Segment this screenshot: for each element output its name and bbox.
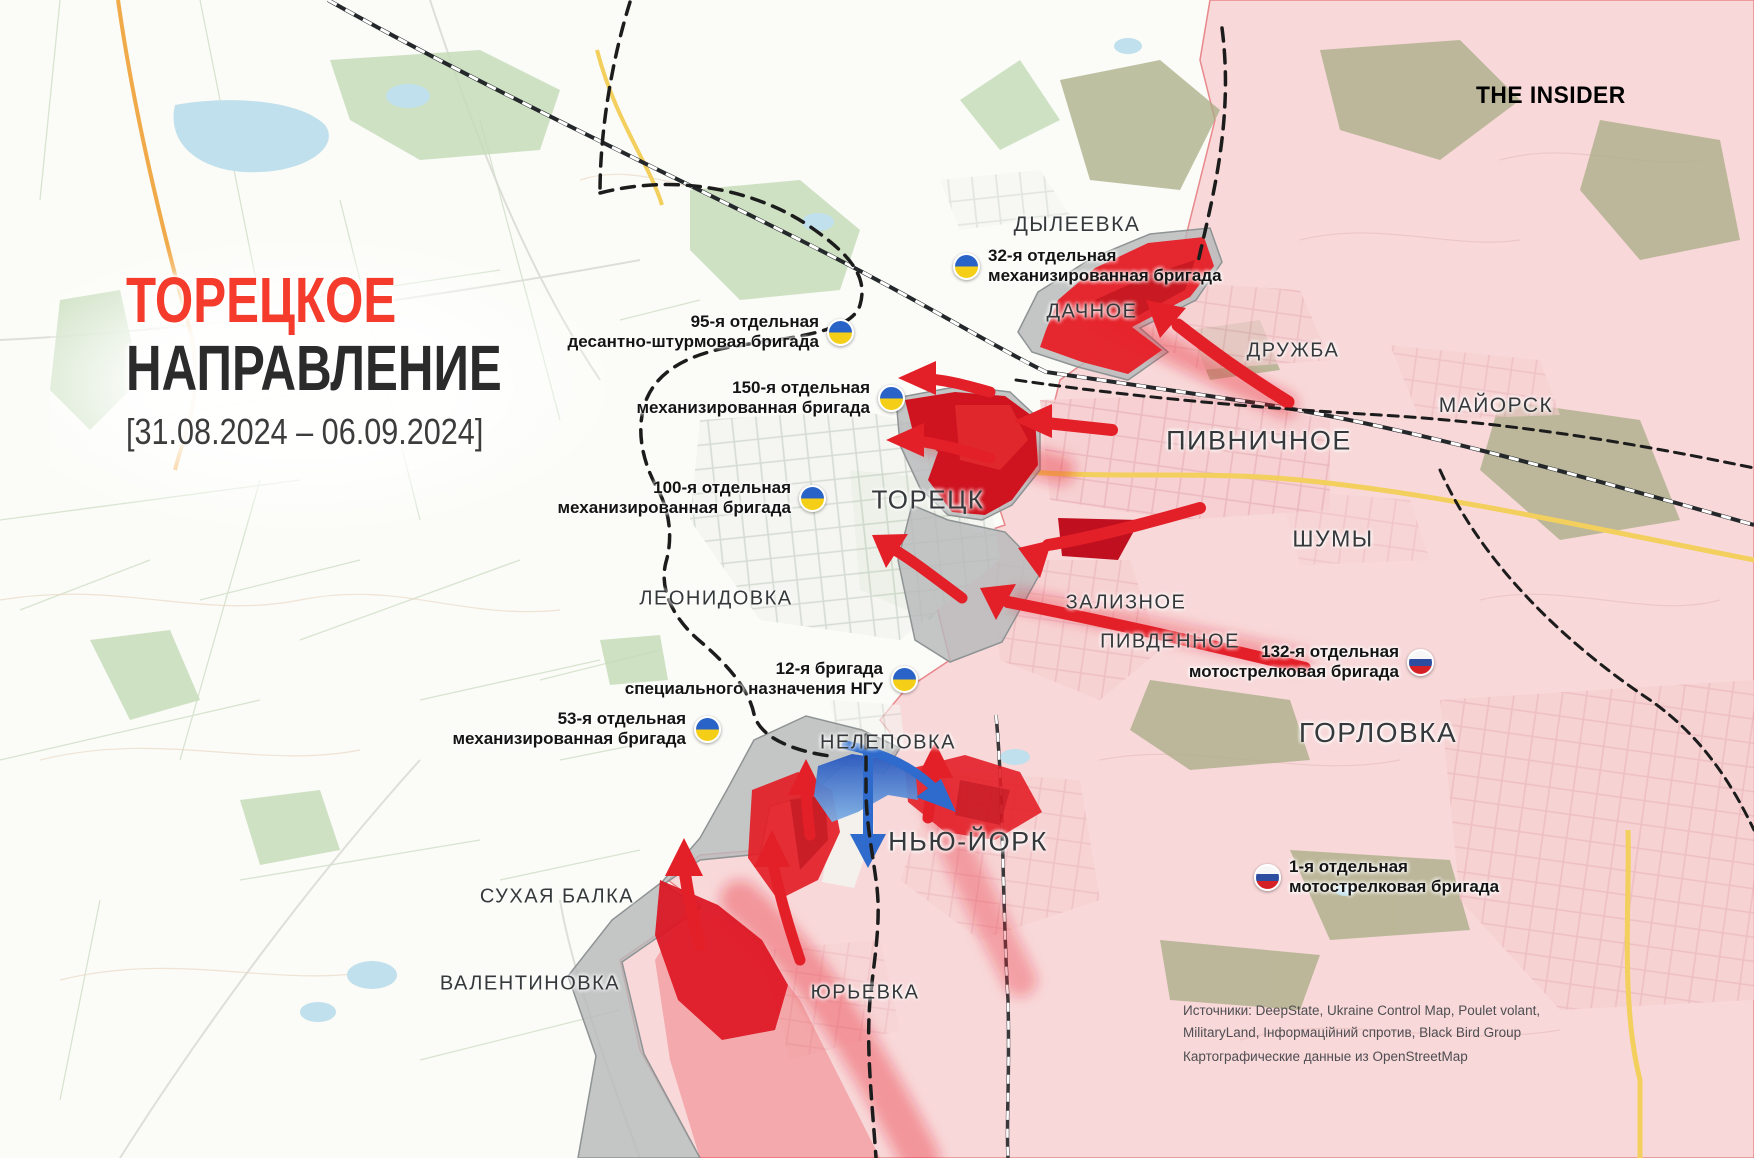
place-label-dyleevka: ДЫЛЕЕВКА	[1014, 213, 1141, 237]
unit-name-line: механизированная бригада	[557, 498, 791, 518]
unit-name-line: мотострелковая бригада	[1289, 877, 1499, 897]
russia-flag-icon	[1254, 864, 1281, 891]
unit-name-line: 95-я отдельная	[567, 312, 819, 332]
unit-name-line: 100-я отдельная	[557, 478, 791, 498]
unit-name: 32-я отдельнаямеханизированная бригада	[988, 246, 1222, 286]
unit-name-line: 53-я отдельная	[452, 709, 686, 729]
unit-name-line: 132-я отдельная	[1189, 642, 1399, 662]
place-label-new-york: НЬЮ-ЙОРК	[888, 827, 1048, 858]
ukraine-flag-icon	[799, 485, 826, 512]
map-canvas: ТОРЕЦКОЕ НАПРАВЛЕНИЕ [31.08.2024 – 06.09…	[0, 0, 1754, 1158]
unit-name-line: 12-я бригада	[625, 659, 883, 679]
unit-label-ua-32: 32-я отдельнаямеханизированная бригада	[953, 246, 1222, 286]
place-label-yuryevka: ЮРЬЕВКА	[811, 982, 920, 1005]
ukraine-flag-icon	[827, 319, 854, 346]
unit-label-ua-95: 95-я отдельнаядесантно-штурмовая бригада	[567, 312, 854, 352]
place-label-nelepovka: НЕЛЕПОВКА	[820, 732, 956, 755]
title-direction: НАПРАВЛЕНИЕ	[126, 336, 502, 400]
place-label-valentinovka: ВАЛЕНТИНОВКА	[440, 973, 620, 996]
unit-name-line: специального назначения НГУ	[625, 679, 883, 699]
unit-label-ua-12: 12-я бригадаспециального назначения НГУ	[625, 659, 918, 699]
ukraine-flag-icon	[694, 716, 721, 743]
unit-name-line: 150-я отдельная	[636, 378, 870, 398]
unit-name: 132-я отдельнаямотострелковая бригада	[1189, 642, 1399, 682]
sources-line-1: Источники: DeepState, Ukraine Control Ma…	[1183, 1000, 1540, 1022]
unit-name-line: механизированная бригада	[988, 266, 1222, 286]
unit-name-line: механизированная бригада	[636, 398, 870, 418]
russia-flag-icon	[1407, 649, 1434, 676]
unit-label-ru-1: 1-я отдельнаямотострелковая бригада	[1254, 857, 1499, 897]
place-label-sukhaya-balka: СУХАЯ БАЛКА	[480, 886, 634, 909]
place-label-druzhba: ДРУЖБА	[1247, 340, 1340, 363]
unit-label-ua-150: 150-я отдельнаямеханизированная бригада	[636, 378, 905, 418]
unit-name-line: 1-я отдельная	[1289, 857, 1499, 877]
sources-line-2: MilitaryLand, Інформаційний спротив, Bla…	[1183, 1022, 1540, 1044]
place-label-leonidovka: ЛЕОНИДОВКА	[639, 588, 792, 611]
unit-name-line: десантно-штурмовая бригада	[567, 332, 819, 352]
place-label-dachnoe: ДАЧНОЕ	[1047, 301, 1138, 324]
unit-name: 1-я отдельнаямотострелковая бригада	[1289, 857, 1499, 897]
insider-logo: THE INSIDER	[1476, 82, 1626, 110]
sources-osm-line: Картографические данные из OpenStreetMap	[1183, 1046, 1540, 1068]
ukraine-flag-icon	[878, 385, 905, 412]
place-label-pivnichnoe: ПИВНИЧНОЕ	[1166, 426, 1352, 457]
place-label-gorlovka: ГОРЛОВКА	[1299, 717, 1457, 749]
unit-name: 12-я бригадаспециального назначения НГУ	[625, 659, 883, 699]
unit-name-line: 32-я отдельная	[988, 246, 1222, 266]
title-region: ТОРЕЦКОЕ	[126, 268, 502, 332]
map-title: ТОРЕЦКОЕ НАПРАВЛЕНИЕ [31.08.2024 – 06.09…	[126, 268, 614, 450]
title-daterange: [31.08.2024 – 06.09.2024]	[126, 414, 541, 450]
place-label-shumy: ШУМЫ	[1292, 526, 1373, 553]
unit-label-ua-100: 100-я отдельнаямеханизированная бригада	[557, 478, 826, 518]
unit-label-ru-132: 132-я отдельнаямотострелковая бригада	[1189, 642, 1434, 682]
unit-name: 95-я отдельнаядесантно-штурмовая бригада	[567, 312, 819, 352]
unit-label-ua-53: 53-я отдельнаямеханизированная бригада	[452, 709, 721, 749]
place-label-mayorsk: МАЙОРСК	[1439, 394, 1554, 418]
unit-name: 100-я отдельнаямеханизированная бригада	[557, 478, 791, 518]
unit-name: 150-я отдельнаямеханизированная бригада	[636, 378, 870, 418]
unit-name-line: механизированная бригада	[452, 729, 686, 749]
ukraine-flag-icon	[953, 253, 980, 280]
place-label-toretsk: ТОРЕЦК	[872, 485, 985, 516]
label-overlay: ТОРЕЦКОЕ НАПРАВЛЕНИЕ [31.08.2024 – 06.09…	[0, 0, 1754, 1158]
ukraine-flag-icon	[891, 666, 918, 693]
unit-name: 53-я отдельнаямеханизированная бригада	[452, 709, 686, 749]
sources-note: Источники: DeepState, Ukraine Control Ma…	[1183, 1000, 1540, 1068]
unit-name-line: мотострелковая бригада	[1189, 662, 1399, 682]
place-label-zalizne: ЗАЛИЗНОЕ	[1066, 592, 1187, 615]
